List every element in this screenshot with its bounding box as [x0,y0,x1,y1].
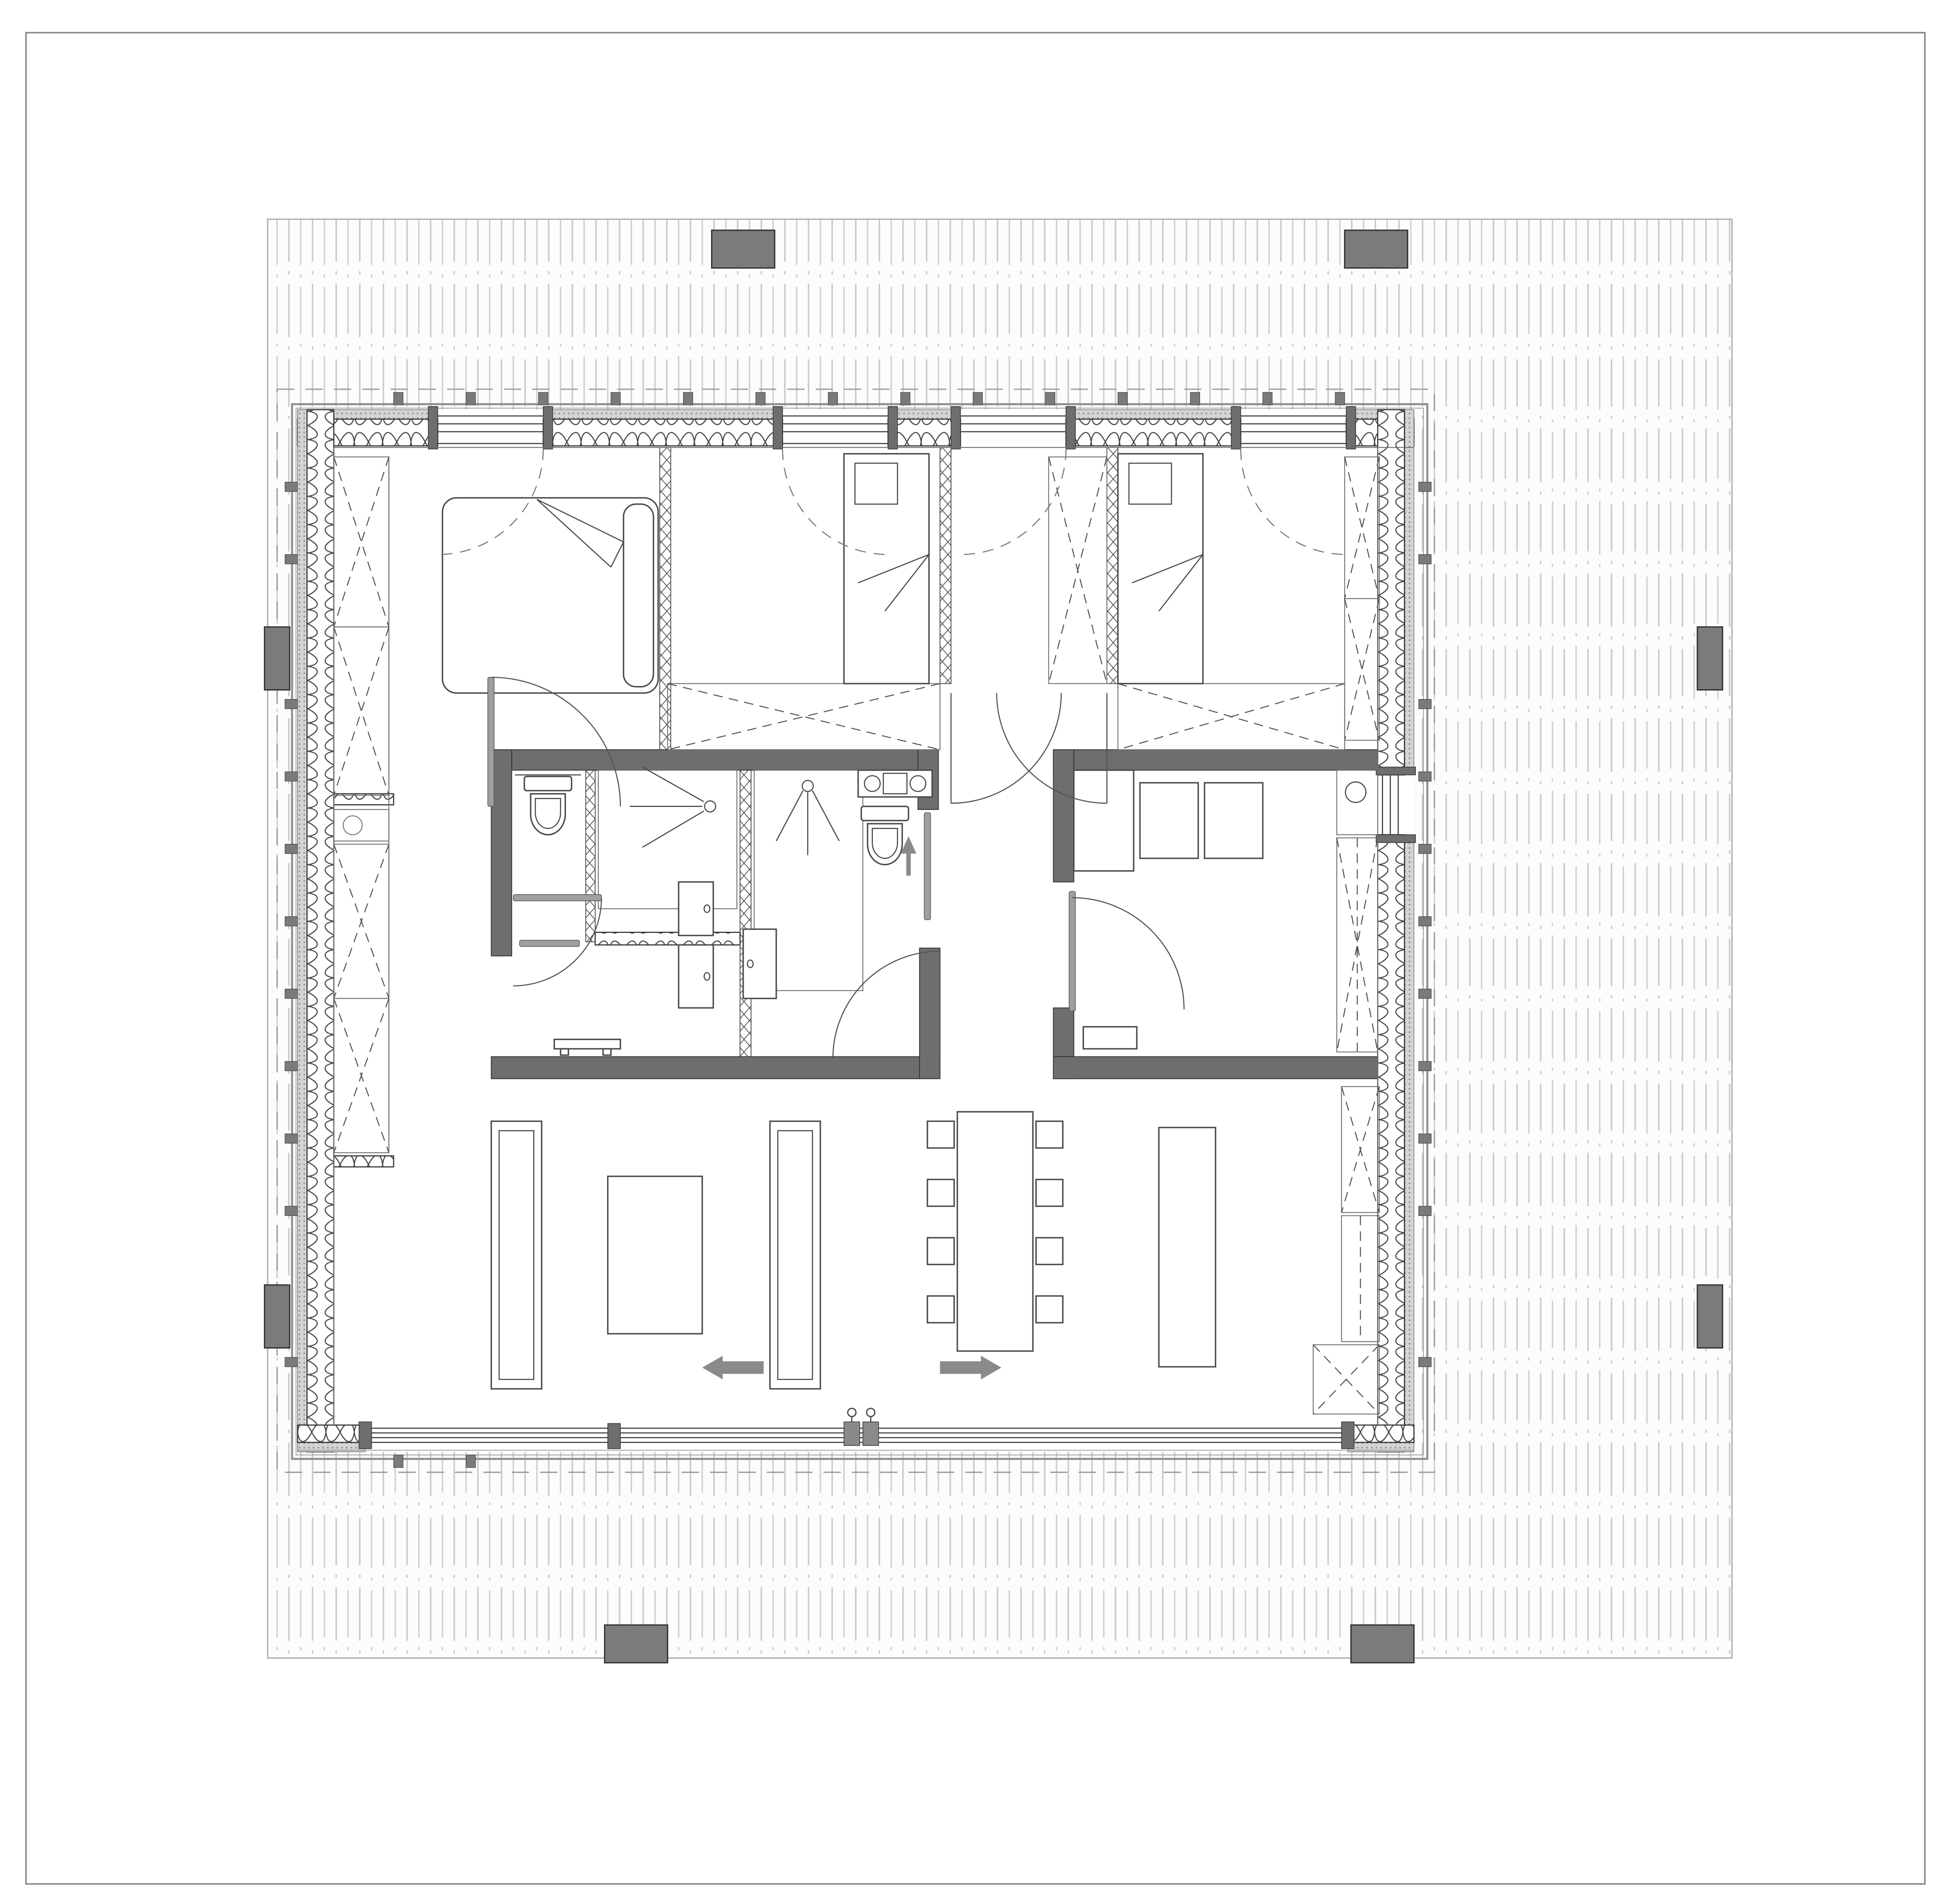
wall-insulation [543,419,783,446]
deck-post [1345,230,1408,268]
cladding-tab [466,1455,476,1467]
cladding-tab [285,1134,298,1143]
wall-stucco [298,410,307,1452]
cladding-tab [756,392,765,405]
partition-stub-kitchen [595,933,740,945]
floor-plan-canvas [0,0,1954,1904]
cabinet [679,945,713,1008]
dining-chair [928,1296,954,1323]
deck-post [265,1285,290,1348]
wall-insulation [1066,419,1241,446]
wall-stucco [543,410,783,419]
floor-plan-page [0,0,1954,1904]
dining-chair [1036,1121,1063,1148]
cladding-tab [466,392,476,405]
cladding-tab [1190,392,1200,405]
wall-insulation [1348,1425,1414,1442]
sofa-1 [491,1121,542,1389]
cladding-tab [285,989,298,998]
core-utility-left-wall-upper [1053,750,1074,882]
bed-single-3 [1118,454,1203,684]
cladding-tab [1419,699,1431,709]
utility-shelf [1083,1027,1137,1049]
cladding-tab [1419,555,1431,564]
cladding-tab [901,392,910,405]
wall-stucco [1404,835,1414,1452]
cladding-tab [1419,844,1431,854]
bed-double [443,498,658,693]
cladding-tab [1045,392,1055,405]
core-bath-right-wall-lower [920,948,940,1079]
wall-insulation [888,419,961,446]
cladding-tab [539,392,548,405]
core-bath-bottom-wall [491,1057,920,1079]
partition-bed1-bed2 [660,448,671,750]
deck-post [1351,1625,1414,1663]
wall-stucco [888,410,961,419]
dining-chair [1036,1296,1063,1323]
cladding-tab [285,844,298,854]
cladding-tab [285,917,298,926]
deck-post [1697,1285,1722,1348]
core-utility-top-wall [1053,750,1378,770]
utility-counter [1074,770,1134,871]
dining-chair [928,1179,954,1206]
coffee-table [608,1176,702,1334]
wall-insulation [307,410,334,1452]
kitchen-island [1159,1127,1215,1367]
wall-insulation [298,1425,365,1442]
cladding-tab [285,555,298,564]
wall-stucco [1404,410,1414,775]
left-wall [298,410,334,1452]
cladding-tab [1419,772,1431,781]
vanity-double-basin [858,770,932,797]
dining-chair [1036,1179,1063,1206]
house [298,407,1415,1452]
cladding-tab [1419,1206,1431,1216]
partition-wc [586,770,595,942]
cladding-tab [1419,1061,1431,1071]
partition-bed2-hall [940,448,951,684]
cladding-tab [285,1061,298,1071]
dining-table [958,1112,1033,1351]
cladding-tab [1419,989,1431,998]
wc-slider-door [520,940,580,947]
cladding-tab [1419,482,1431,492]
cabinet [743,929,776,999]
cladding-tab [285,1206,298,1216]
sofa-2 [770,1121,820,1389]
deck-post [605,1625,668,1663]
cladding-tab [1419,917,1431,926]
closet-divider-stub [334,1156,394,1167]
dining-chair [928,1121,954,1148]
cladding-tab [1263,392,1272,405]
cladding-tab [1419,1134,1431,1143]
cladding-tab [285,699,298,709]
core-utility-bottom-wall [1053,1057,1378,1079]
cladding-tab [285,772,298,781]
cladding-tab [285,482,298,492]
door-leaf-master [488,677,494,807]
dining-chair [928,1238,954,1264]
cabinet [679,882,713,936]
cladding-tab [683,392,693,405]
deck-post [1697,627,1722,690]
wall-insulation [1378,410,1404,775]
cladding-tab [828,392,838,405]
cladding-tab [973,392,983,405]
deck-post [265,627,290,690]
door-leaf-utility [1069,892,1075,1011]
cladding-tab [394,392,403,405]
dining-chair [1036,1238,1063,1264]
door-leaf-lobby [513,895,602,901]
partition-hall-bed3 [1107,448,1118,684]
cladding-tab [1118,392,1127,405]
cladding-tab [1335,392,1345,405]
bed-single-2 [844,454,929,684]
cladding-tab [394,1455,403,1467]
wall-stucco [1066,410,1241,419]
pillow [624,504,654,687]
cladding-tab [1419,1357,1431,1367]
bath-slider-door [924,813,931,920]
cladding-tab [285,1357,298,1367]
deck-post [712,230,775,268]
dryer [1204,783,1263,859]
wall-insulation [1378,835,1404,1452]
core-bath-top-wall [491,750,939,770]
partition-bath [740,770,751,1057]
washer [1140,783,1198,859]
right-wall [1376,410,1415,1452]
cladding-tab [611,392,620,405]
